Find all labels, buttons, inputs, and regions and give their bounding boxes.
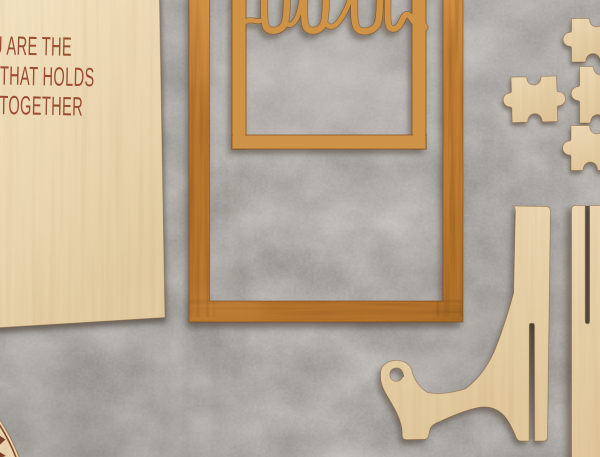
svg-text:TOGETHER: TOGETHER [0, 90, 83, 121]
svg-text:U ARE THE: U ARE THE [0, 31, 72, 62]
svg-text:THAT HOLDS: THAT HOLDS [0, 61, 95, 93]
